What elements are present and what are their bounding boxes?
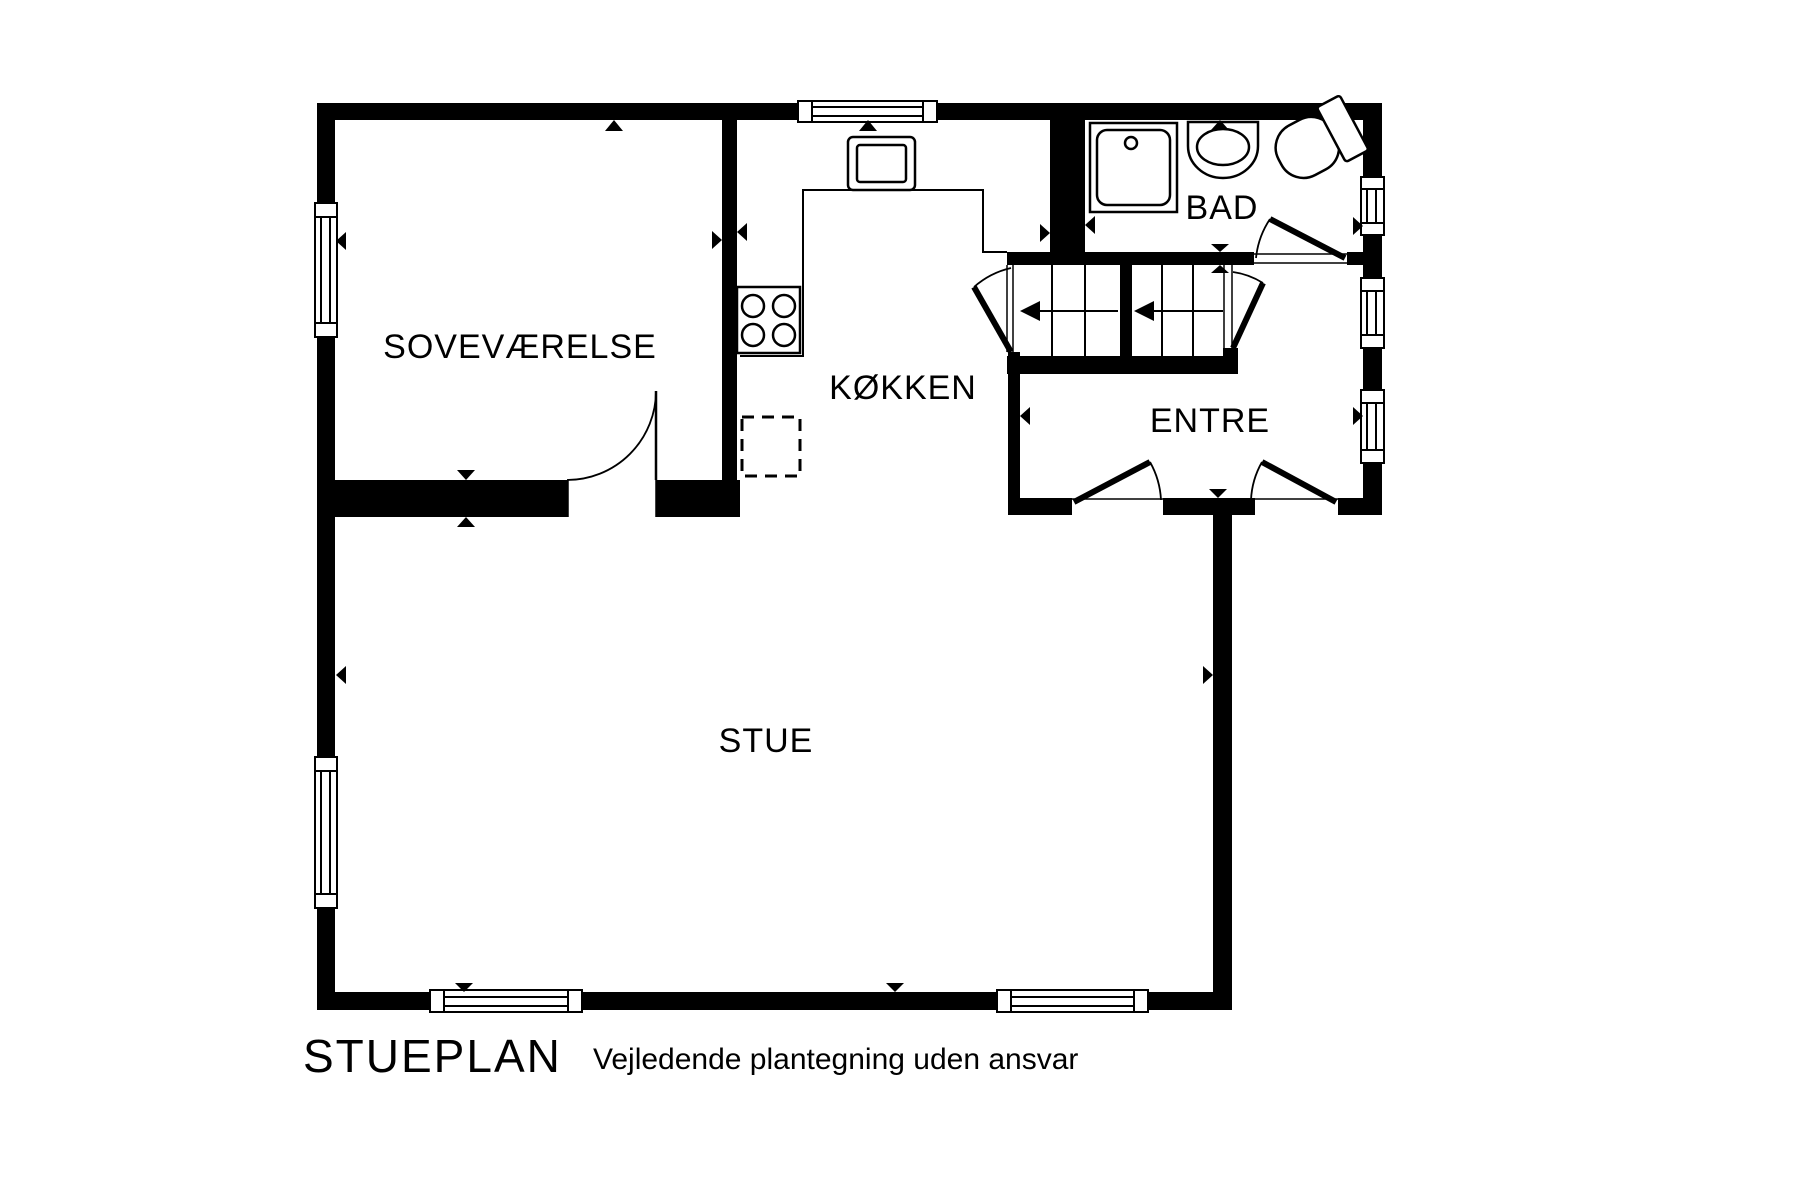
walls [317,103,1382,1010]
floor-plan-page: SOVEVÆRELSE KØKKEN BAD ENTRE STUE STUEPL… [0,0,1800,1200]
marker-arrow-up-icon [605,120,623,131]
window-bath [1361,177,1384,235]
wall-entry-left [1008,352,1020,498]
floor-plan-drawing: SOVEVÆRELSE KØKKEN BAD ENTRE STUE STUEPL… [0,0,1800,1200]
marker-arrow-up-icon [457,517,475,527]
wall-stair-middle [1120,265,1132,356]
marker-arrow-right-icon [1203,666,1213,684]
front-door-opening [1255,497,1338,516]
stair-hall-door-swing [1233,272,1263,348]
marker-arrow-down-icon [1211,244,1229,252]
wall-markers [336,120,1363,992]
title-block: STUEPLAN Vejledende plantegning uden ans… [303,1030,1078,1082]
window-entry-upper [1361,278,1384,348]
kitchen-stair-door-swing [974,268,1011,352]
room-label-living: STUE [719,722,814,760]
window-living-left [315,757,337,908]
wall-bedroom-bottom [335,480,740,517]
washbasin [1188,122,1258,178]
front-door-swing [1251,462,1336,502]
marker-arrow-down-icon [1209,489,1227,498]
stair-direction-arrow [1020,301,1040,321]
marker-arrow-left-icon [737,223,747,241]
living-entry-door-opening [1072,497,1163,516]
kitchen-sink [848,137,915,190]
window-living-bottom-left [430,990,582,1012]
wall-living-right [1213,498,1232,1010]
window-kitchen [798,101,937,122]
room-label-kitchen: KØKKEN [829,369,977,407]
page-title: STUEPLAN [303,1030,562,1082]
stove [737,287,800,353]
kitchen-fixtures [737,137,1007,476]
marker-arrow-right-icon [712,231,722,249]
bedroom-door-swing [567,391,656,480]
marker-arrow-down-icon [457,470,475,480]
wall-stair-bottom [1007,356,1238,374]
window-entry-lower [1361,390,1384,463]
room-label-entry: ENTRE [1150,402,1270,440]
marker-arrow-left-icon [336,666,346,684]
marker-arrow-down-icon [886,983,904,992]
stair-door-frames [1007,265,1232,352]
marker-arrow-left-icon [1085,216,1095,234]
wall-stair-corner [1223,348,1238,360]
stair-right-run [1134,265,1223,356]
chimney-dashed-box [742,417,800,476]
room-label-bedroom: SOVEVÆRELSE [383,328,657,366]
stair-direction-arrow [1134,301,1154,321]
window-bedroom [315,203,337,337]
room-label-bath: BAD [1186,189,1259,227]
wall-kitchen-bath [1050,120,1085,265]
stair-left-run [1020,265,1118,356]
living-entry-door-swing [1074,462,1161,502]
room-labels: SOVEVÆRELSE KØKKEN BAD ENTRE STUE [383,189,1270,760]
staircase [1007,265,1232,356]
shower [1090,123,1177,212]
marker-arrow-left-icon [1020,407,1030,425]
window-living-bottom-right [997,990,1148,1012]
marker-arrow-right-icon [1040,224,1050,242]
marker-arrow-up-icon [1211,265,1229,273]
page-subtitle: Vejledende plantegning uden ansvar [593,1043,1078,1076]
bedroom-door-opening [568,479,656,518]
wall-bedroom-right [722,120,737,482]
